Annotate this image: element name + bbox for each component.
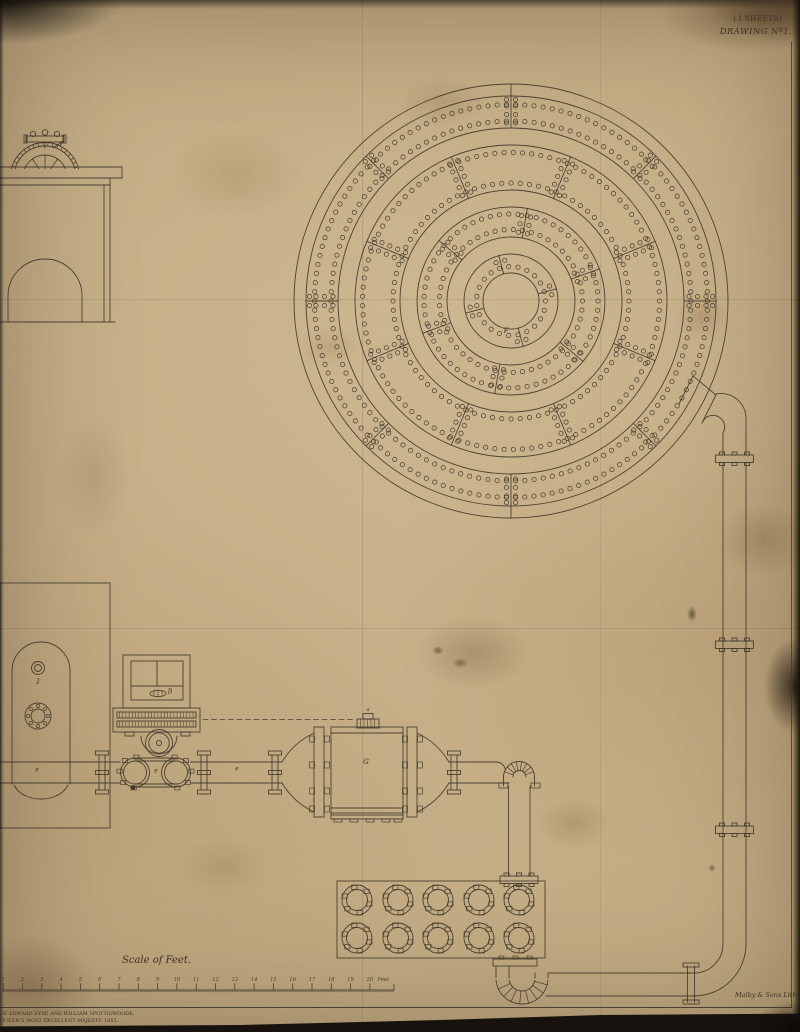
imprint-line2: QUEEN'S MOST EXCELLENT MAJESTY. 1855. (0, 1019, 118, 1024)
scale-title: Scale of Feet. (122, 955, 191, 966)
svg-text:4: 4 (58, 977, 62, 983)
svg-text:19: 19 (347, 977, 354, 983)
svg-text:Feet: Feet (377, 977, 390, 983)
svg-text:8: 8 (137, 977, 141, 983)
svg-text:11: 11 (193, 977, 200, 983)
svg-text:14: 14 (251, 977, 258, 983)
drawing-sheet: 1234567891011121314151617181920Feet (3 S… (0, 0, 800, 1032)
svg-text:7: 7 (117, 977, 121, 983)
part-label-plan-center: F (504, 327, 509, 335)
part-label-tank: G (363, 758, 369, 766)
svg-text:5: 5 (79, 977, 82, 983)
part-label-vessel: I (37, 678, 40, 686)
svg-text:10: 10 (174, 977, 181, 983)
svg-text:20: 20 (366, 977, 374, 983)
svg-text:12: 12 (212, 977, 219, 983)
part-label-vessel-pipe: e (35, 767, 39, 774)
svg-text:2: 2 (20, 977, 24, 983)
imprint-line1: GE EDWARD EYRE AND WILLIAM SPOTTISWOODE, (0, 1012, 134, 1017)
part-label-mid-pipe: e (235, 766, 239, 773)
drawing-linework: 1234567891011121314151617181920Feet (0, 0, 800, 1032)
svg-text:6: 6 (98, 977, 102, 983)
part-label-machine: B (168, 689, 172, 696)
svg-text:1: 1 (2, 977, 5, 983)
svg-text:17: 17 (309, 977, 316, 983)
part-label-tank-top: a (366, 707, 369, 713)
svg-text:13: 13 (231, 977, 238, 983)
part-label-pump-chamber: e (154, 768, 158, 775)
svg-text:15: 15 (270, 977, 277, 983)
drawing-number: DRAWING Nº1. (710, 27, 800, 37)
svg-text:3: 3 (40, 977, 44, 983)
svg-text:18: 18 (328, 977, 335, 983)
litho-credit: Malby & Sons Lith (735, 991, 797, 999)
sheets-note: (3 SHEETS) (718, 15, 798, 23)
svg-text:16: 16 (289, 977, 296, 983)
svg-text:9: 9 (156, 977, 160, 983)
